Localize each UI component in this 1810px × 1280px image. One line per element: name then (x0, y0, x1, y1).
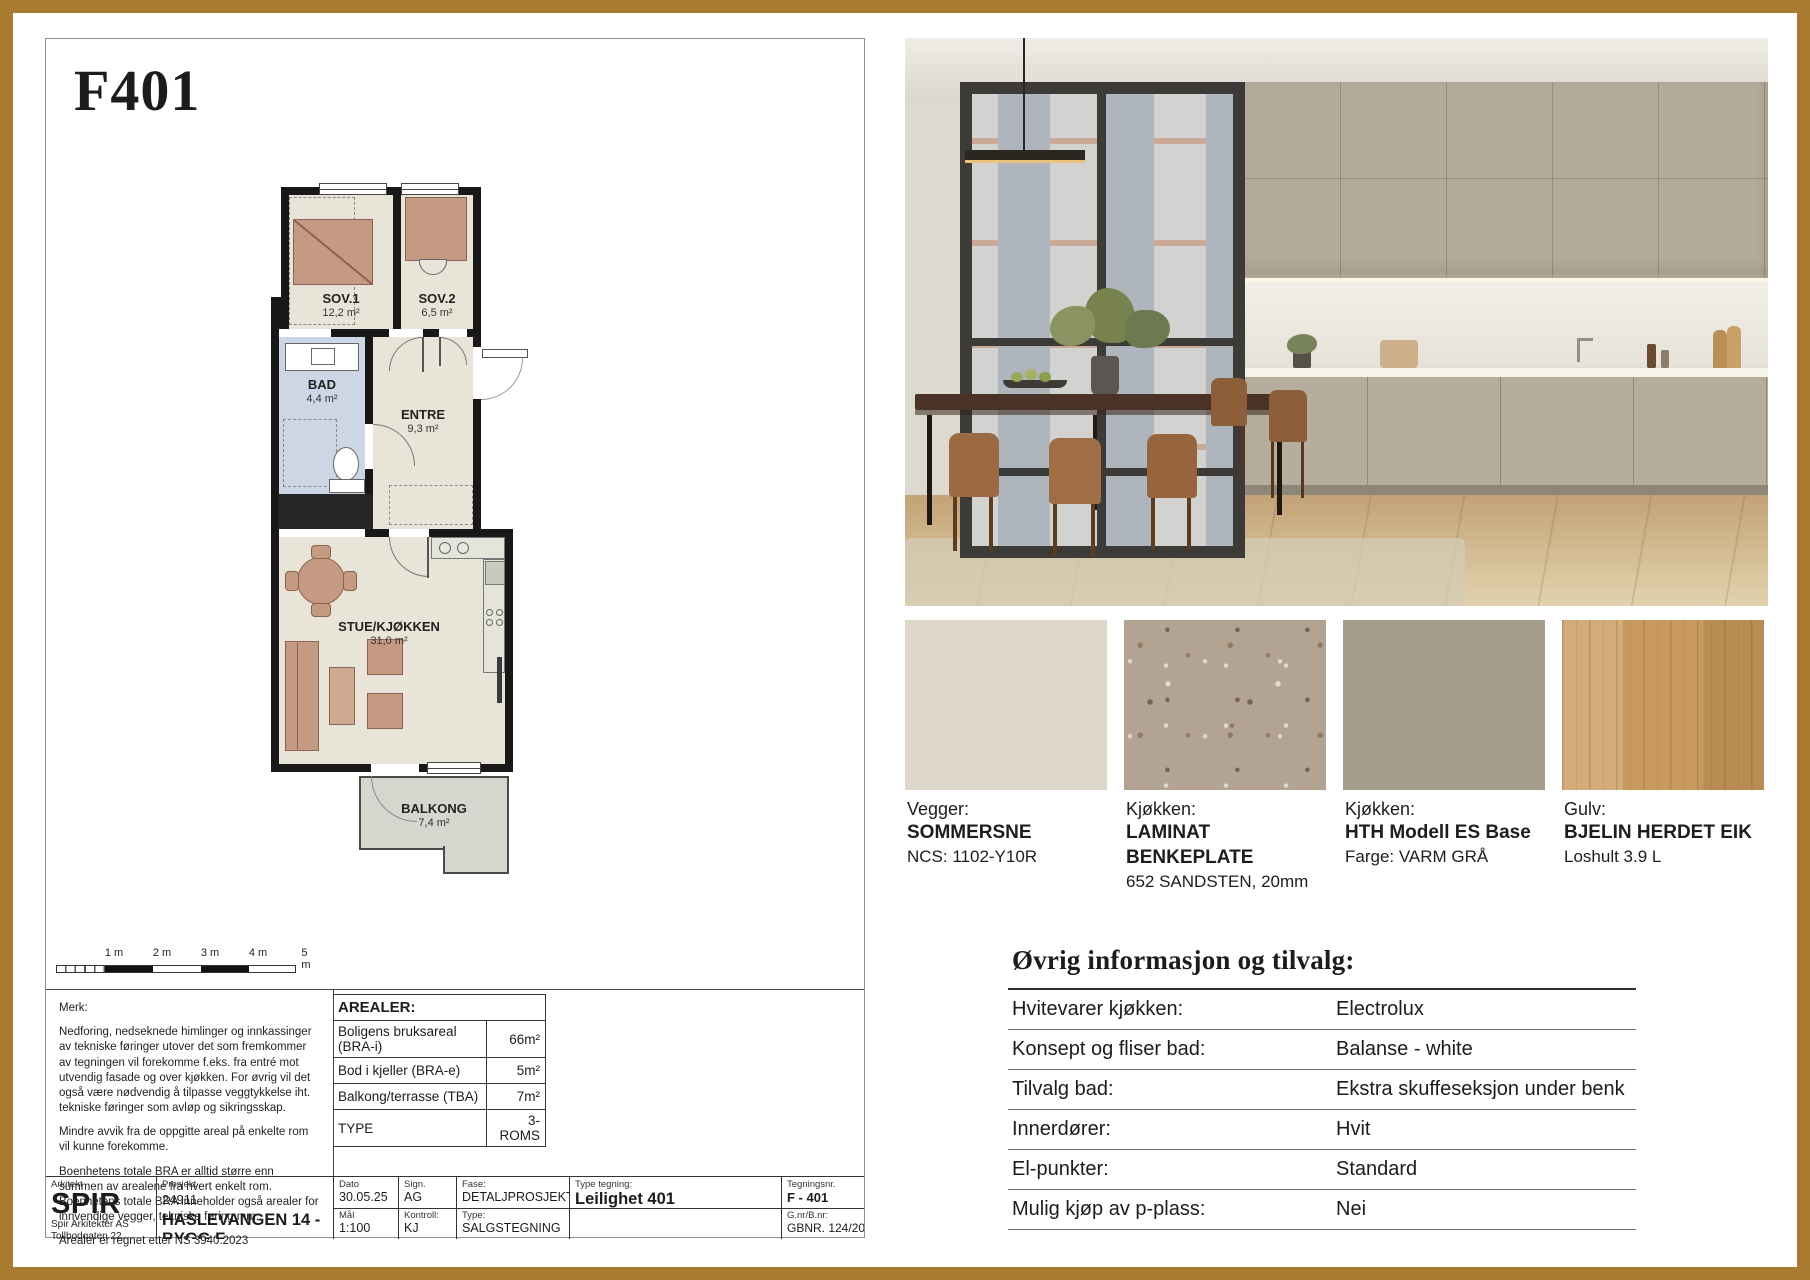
scale-bar: 1 m 2 m 3 m 4 m 5 m (56, 947, 296, 977)
dining-table (297, 557, 345, 605)
apartment-id: F401 (74, 57, 200, 124)
spir-logo: SPIR (51, 1190, 151, 1219)
swatch-laminat-benkeplate (1124, 620, 1326, 790)
divider (46, 989, 864, 990)
chair (343, 571, 357, 591)
sink-icon (311, 348, 335, 365)
window (319, 183, 387, 195)
chair (945, 433, 1003, 551)
bottle (1647, 344, 1656, 368)
window (427, 762, 481, 774)
closet (389, 485, 473, 525)
notes-heading: Merk: (59, 1001, 321, 1016)
project-cell: Prosjekt 24911 HASLEVANGEN 14 - BYGG F (156, 1177, 333, 1239)
bed (405, 197, 467, 261)
sink-icon (439, 542, 451, 554)
fruit-bowl (1003, 380, 1067, 388)
material-label: Gulv:BJELIN HERDET EIKLoshult 3.9 L (1564, 798, 1774, 868)
shower (283, 419, 337, 487)
wall (365, 469, 373, 494)
coffee-table (329, 667, 355, 725)
wall (271, 764, 371, 772)
info-row: Mulig kjøp av p-plass:Nei (1008, 1190, 1636, 1230)
material-label: Kjøkken:LAMINAT BENKEPLATE652 SANDSTEN, … (1126, 798, 1336, 893)
scale-label: 5 m (301, 947, 310, 971)
date-scale-cell: Dato30.05.25 Mål1:100 (333, 1177, 398, 1239)
chair (1207, 378, 1251, 478)
wall (271, 329, 279, 529)
wall (473, 187, 481, 347)
toilet-icon (333, 447, 359, 481)
options-info-table: Øvrig informasjon og tilvalg: Hvitevarer… (1008, 945, 1636, 1230)
bed (293, 219, 373, 285)
table-row: Bod i kjeller (BRA-e)5m² (333, 1058, 546, 1084)
wall (423, 329, 439, 337)
chair (1045, 438, 1105, 556)
floorplan-sheet: F401 (45, 38, 865, 1238)
armchair (367, 693, 403, 729)
info-row: Innerdører:Hvit (1008, 1110, 1636, 1150)
pendant-cord (1023, 38, 1025, 150)
cutting-boards (1713, 326, 1743, 368)
room-label: STUE/KJØKKEN31,0 m² (338, 619, 440, 649)
drawing-no-cell: Tegningsnr. F - 401 G.nr/B.nr:GBNR. 124/… (781, 1177, 864, 1239)
wall (393, 195, 401, 329)
area-table-heading: AREALER: (333, 995, 546, 1021)
chair (311, 603, 331, 617)
chair (1265, 390, 1311, 498)
wall (271, 529, 279, 772)
room-label: BALKONG7,4 m² (401, 801, 467, 831)
room-label: SOV.112,2 m² (322, 291, 359, 321)
bottle (1661, 350, 1669, 368)
counter-plant (1285, 338, 1319, 368)
table-row: Balkong/terrasse (TBA)7m² (333, 1084, 546, 1110)
faucet-icon (1577, 340, 1580, 362)
wall (365, 529, 389, 537)
material-label: Kjøkken:HTH Modell ES BaseFarge: VARM GR… (1345, 798, 1555, 868)
wall (271, 297, 289, 329)
chair (311, 545, 331, 559)
tv (497, 657, 502, 703)
toilet-tank (329, 479, 365, 493)
wall (331, 329, 389, 337)
sign-check-cell: Sign.AG Kontroll:KJ (398, 1177, 456, 1239)
chair (285, 571, 299, 591)
door-arc (481, 358, 523, 400)
wall (505, 529, 513, 772)
chair (1143, 434, 1201, 550)
vase (1091, 356, 1119, 396)
architect-cell: Arkitekt SPIR Spir Arkitekter ASTollbodg… (46, 1177, 156, 1239)
wall (467, 329, 477, 337)
tech-shaft (279, 494, 373, 529)
floor-plan: SOV.112,2 m² SOV.26,5 m² BAD4,4 m² ENTRE… (271, 179, 561, 914)
area-table: AREALER: Boligens bruksareal (BRA-i)66m²… (333, 994, 546, 1147)
table-row: TYPE3-ROMS (333, 1110, 546, 1147)
table-row: Boligens bruksareal (BRA-i)66m² (333, 1021, 546, 1058)
info-row: Konsept og fliser bad:Balanse - white (1008, 1030, 1636, 1070)
room-label: BAD4,4 m² (306, 377, 337, 407)
wall (473, 399, 481, 529)
swatch-hth-modell-es-base (1343, 620, 1545, 790)
sink-icon (457, 542, 469, 554)
wall (479, 764, 513, 772)
scale-label: 2 m (153, 947, 171, 959)
drawing-type-cell: Type tegning: Leilighet 401 (569, 1177, 781, 1239)
material-label: Vegger:SOMMERSNENCS: 1102-Y10R (907, 798, 1117, 868)
sofa (285, 641, 319, 751)
scale-label: 3 m (201, 947, 219, 959)
info-row: Hvitevarer kjøkken:Electrolux (1008, 990, 1636, 1030)
fridge (485, 561, 505, 585)
pendant-lamp (965, 150, 1085, 163)
room-label: SOV.26,5 m² (418, 291, 455, 321)
room-label: ENTRE9,3 m² (401, 407, 445, 437)
swatch-bjelin-herdet-eik (1562, 620, 1764, 790)
wall (365, 337, 373, 424)
info-title: Øvrig informasjon og tilvalg: (1012, 945, 1636, 976)
wall (429, 529, 479, 537)
entrance-door (482, 349, 528, 358)
balcony-extension (443, 846, 509, 874)
bread-board (1380, 334, 1420, 368)
title-block: Arkitekt SPIR Spir Arkitekter ASTollbodg… (46, 1176, 864, 1239)
scale-label: 1 m (105, 947, 123, 959)
swatch-sommersne (905, 620, 1107, 790)
info-row: El-punkter:Standard (1008, 1150, 1636, 1190)
info-row: Tilvalg bad:Ekstra skuffeseksjon under b… (1008, 1070, 1636, 1110)
scale-label: 4 m (249, 947, 267, 959)
phase-type-cell: Fase:DETALJPROSJEKT Type:SALGSTEGNING (456, 1177, 569, 1239)
kitchen-photo (905, 38, 1768, 606)
window (401, 183, 459, 195)
